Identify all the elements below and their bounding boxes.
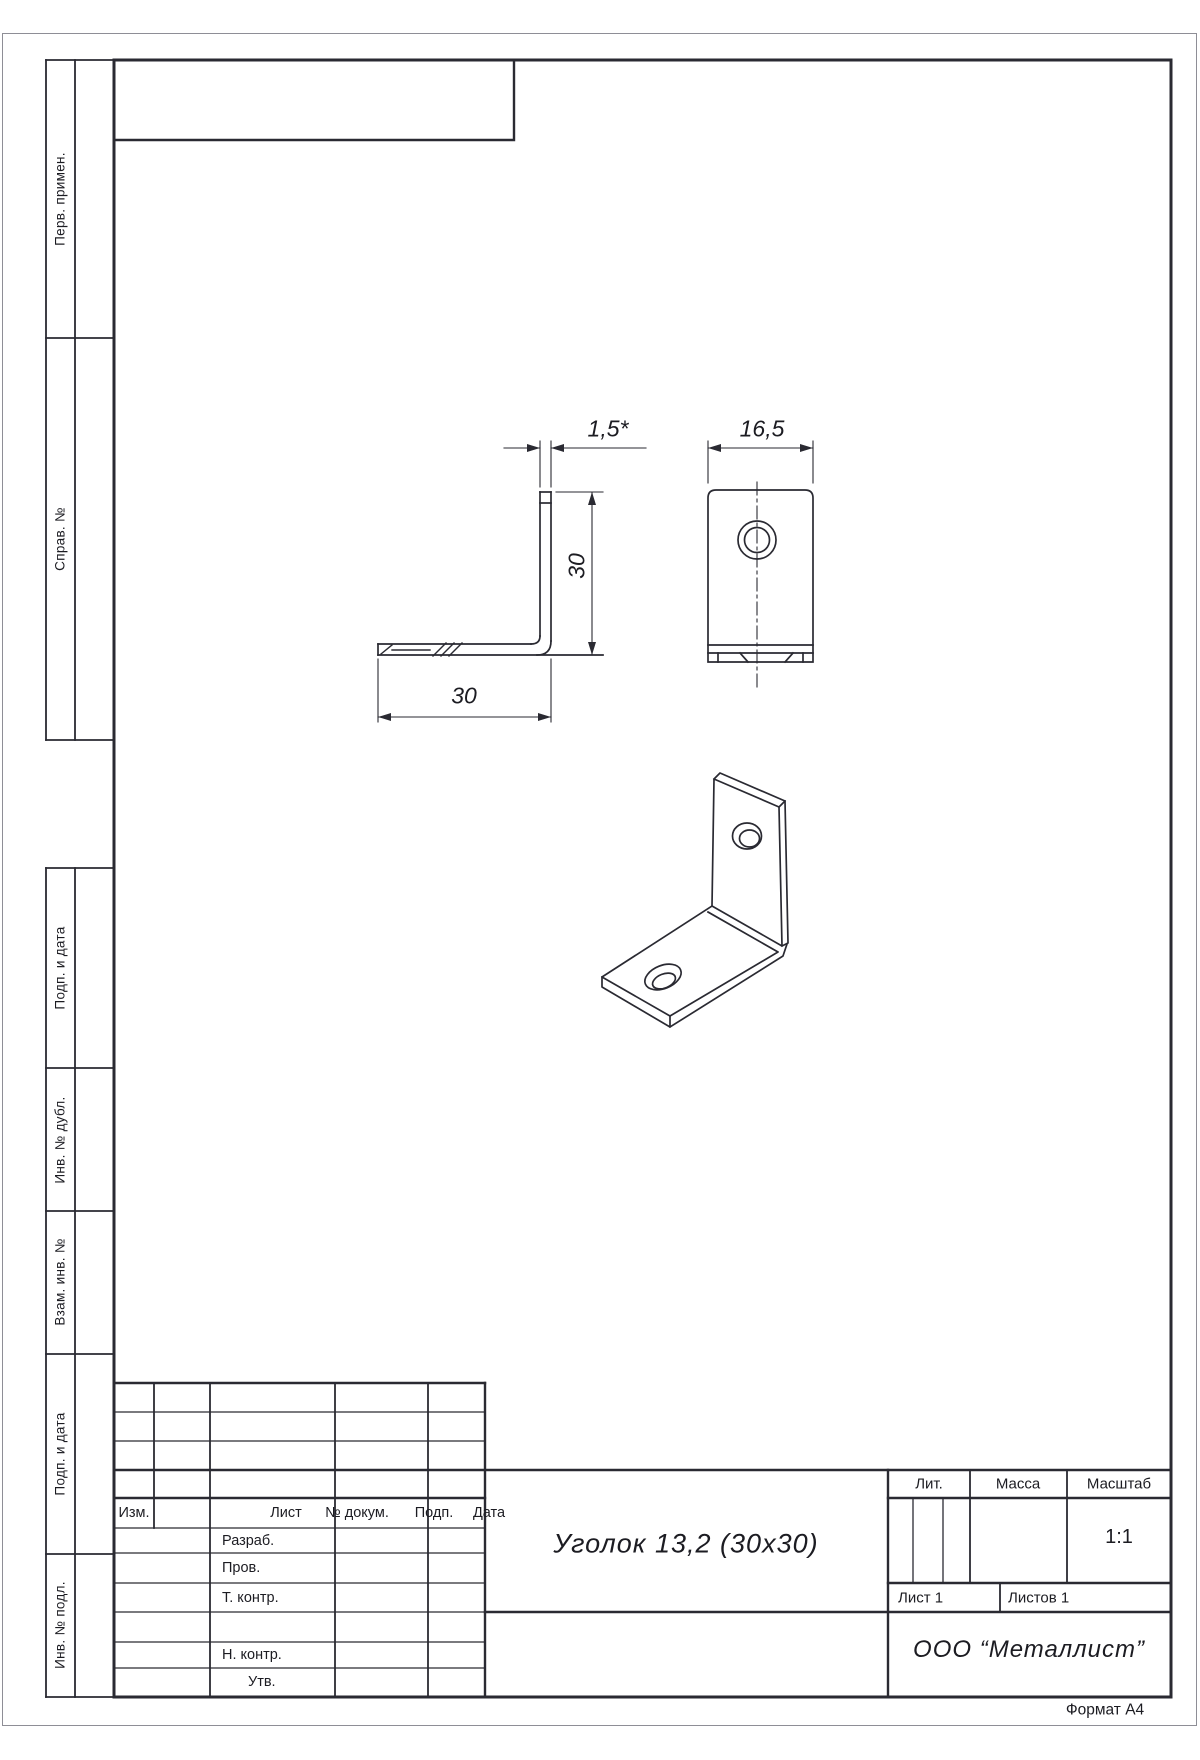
front-view <box>708 482 813 688</box>
scale-value: 1:1 <box>1105 1527 1133 1547</box>
sheets-total-cell: Листов 1 <box>1008 1591 1069 1606</box>
row-utv: Утв. <box>248 1675 276 1690</box>
dim-height: 30 <box>566 553 589 579</box>
lit-label: Лит. <box>915 1477 943 1492</box>
margin-label-perv-primen: Перв. примен. <box>53 152 67 246</box>
sheet-cell: Лист 1 <box>898 1591 943 1606</box>
dim-length: 30 <box>451 685 477 708</box>
header-data: Дата <box>473 1506 505 1521</box>
drawing-canvas <box>0 0 1200 1760</box>
top-designation-box <box>114 60 514 140</box>
countersink-hole-edge <box>381 643 462 656</box>
margin-label-podp-i-data-2: Подп. и дата <box>53 1412 67 1495</box>
header-list: Лист <box>270 1506 302 1521</box>
margin-label-inv-no-podl: Инв. № подл. <box>53 1581 67 1669</box>
header-izm: Изм. <box>118 1506 149 1521</box>
dim-flange-width: 16,5 <box>740 418 785 441</box>
part-name: Уголок 13,2 (30х30) <box>553 1531 818 1558</box>
mass-label: Масса <box>996 1477 1040 1492</box>
margin-label-podp-i-data-1: Подп. и дата <box>53 926 67 1009</box>
organization-name: ООО “Металлист” <box>913 1638 1145 1662</box>
margin-label-inv-no-dubl: Инв. № дубл. <box>53 1096 67 1183</box>
format-note: Формат А4 <box>1066 1702 1144 1718</box>
drawing-sheet: Перв. примен. Справ. № Подп. и дата Инв.… <box>0 0 1200 1760</box>
dimension-lines <box>378 441 813 722</box>
row-t-kontr: Т. контр. <box>222 1591 279 1606</box>
margin-label-sprav-no: Справ. № <box>53 507 67 571</box>
isometric-view <box>602 773 788 1027</box>
sheet-frame <box>114 60 1171 1697</box>
margin-label-vzam-inv-no: Взам. инв. № <box>53 1238 67 1325</box>
header-podp: Подп. <box>415 1506 454 1521</box>
dim-thickness: 1,5* <box>588 418 629 441</box>
header-no-dokum: № докум. <box>325 1506 389 1521</box>
row-prov: Пров. <box>222 1561 260 1576</box>
row-n-kontr: Н. контр. <box>222 1648 282 1663</box>
scale-label: Масштаб <box>1087 1477 1151 1492</box>
row-razrab: Разраб. <box>222 1534 274 1549</box>
